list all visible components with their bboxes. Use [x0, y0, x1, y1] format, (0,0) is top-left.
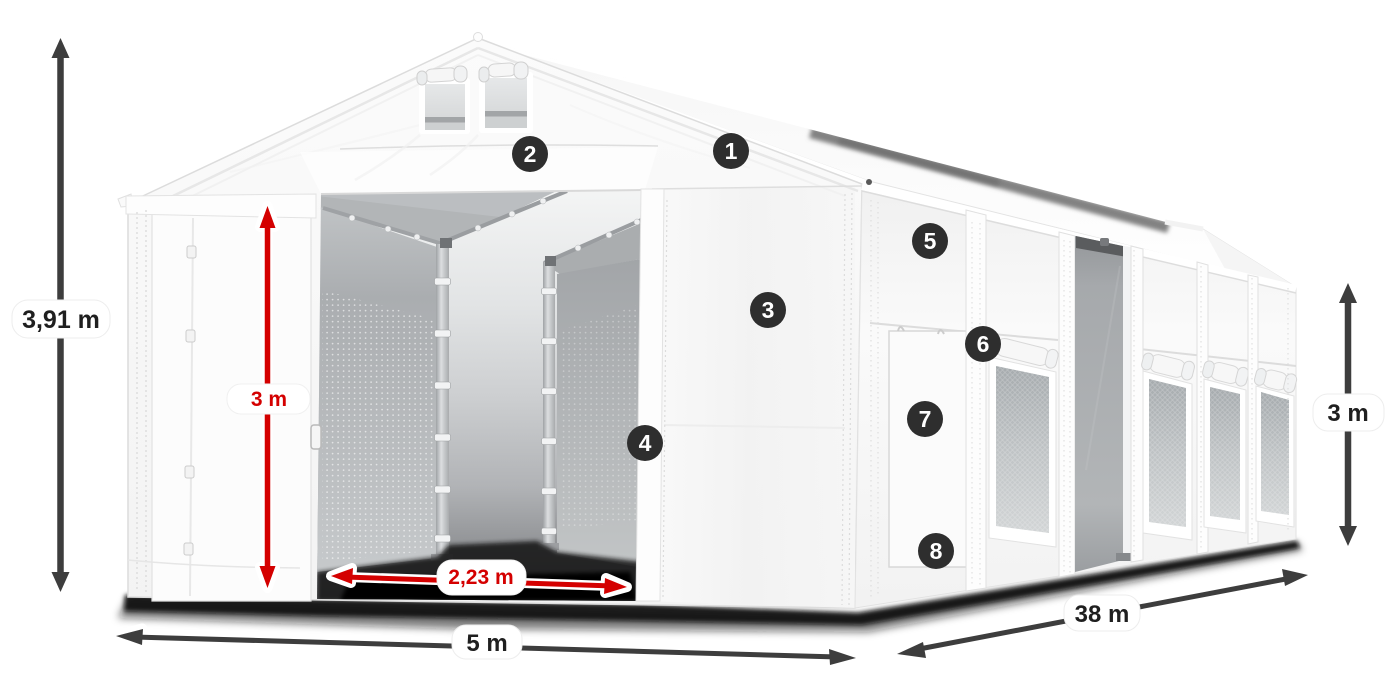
- svg-text:38 m: 38 m: [1075, 601, 1130, 628]
- svg-text:2,23 m: 2,23 m: [448, 566, 513, 589]
- svg-text:8: 8: [930, 538, 943, 564]
- svg-text:1: 1: [725, 138, 738, 164]
- svg-text:6: 6: [977, 331, 990, 357]
- svg-text:5 m: 5 m: [466, 630, 507, 657]
- svg-text:5: 5: [924, 228, 937, 254]
- svg-text:2: 2: [524, 141, 537, 167]
- svg-text:3,91 m: 3,91 m: [22, 306, 100, 334]
- svg-text:3 m: 3 m: [1327, 400, 1368, 427]
- svg-text:3: 3: [762, 297, 775, 323]
- svg-text:4: 4: [639, 430, 652, 456]
- svg-text:3 m: 3 m: [251, 388, 287, 411]
- svg-text:7: 7: [919, 406, 932, 432]
